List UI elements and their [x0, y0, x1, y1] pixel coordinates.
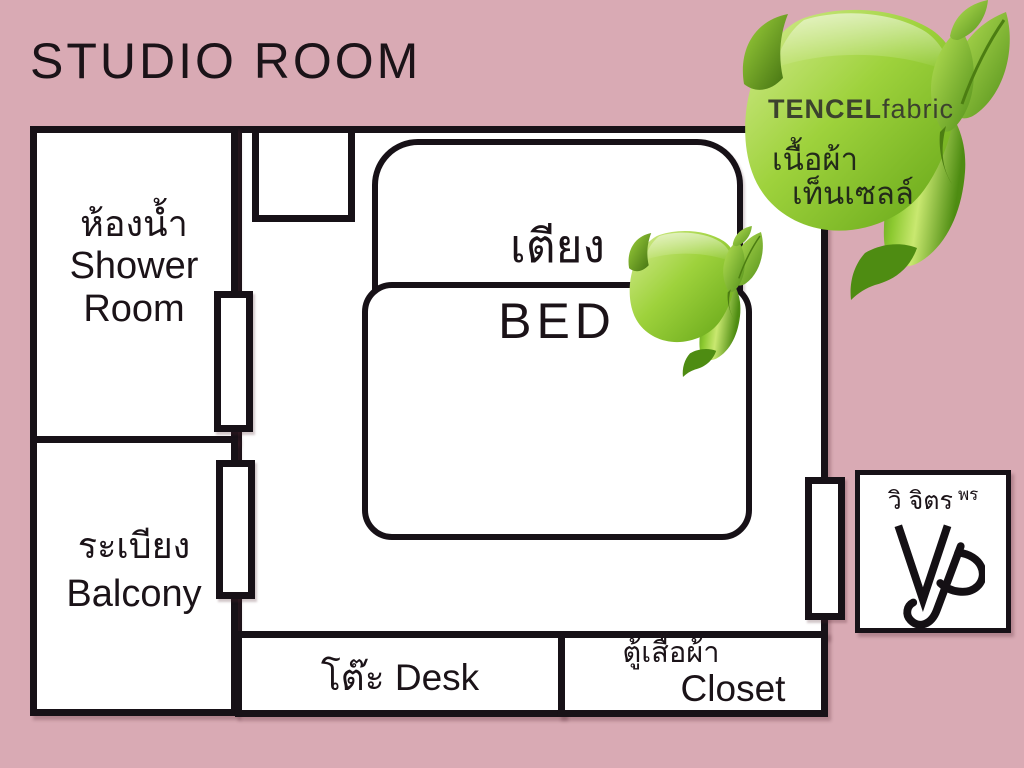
shower-room-label: ห้องน้ำ Shower Room: [30, 202, 238, 331]
wall-niche-outline: [252, 126, 355, 222]
balcony-label: ระเบียง Balcony: [30, 522, 238, 618]
balcony-label-thai: ระเบียง: [30, 522, 238, 570]
logo-name: วิ จิตรพร: [860, 481, 1006, 521]
desk-label-thai: โต๊ะ: [321, 657, 385, 698]
closet-label-thai: ตู้เสื้อผ้า: [536, 636, 806, 670]
logo-name-suffix: พร: [958, 485, 978, 504]
desk-label: โต๊ะ Desk: [235, 648, 565, 707]
page-title: STUDIO ROOM: [30, 32, 421, 90]
shower-room-label-en2: Room: [30, 288, 238, 331]
balcony-label-en: Balcony: [30, 570, 238, 618]
tencel-brand-bold: TENCEL: [768, 94, 882, 124]
logo-name-main: วิ จิตร: [888, 487, 953, 515]
shower-room-label-en1: Shower: [30, 245, 238, 288]
closet-label: ตู้เสื้อผ้า Closet: [558, 636, 828, 707]
entrance-door: [805, 477, 845, 620]
tencel-thai-line2: เท็นเซลล์: [792, 168, 914, 218]
studio-room-floorplan: STUDIO ROOM ห้องน้ำ Shower Room ระเบียง …: [0, 0, 1024, 768]
logo-box: วิ จิตรพร VP: [855, 470, 1011, 633]
tencel-ribbon-icon: [712, 0, 1022, 302]
tencel-brand-text: TENCELfabric: [768, 94, 954, 125]
desk-label-en: Desk: [395, 657, 479, 698]
monogram-v: [898, 526, 947, 600]
closet-label-en: Closet: [598, 670, 868, 707]
tencel-brand-suffix: fabric: [882, 94, 954, 124]
shower-room-label-thai: ห้องน้ำ: [30, 202, 238, 245]
vp-monogram-icon: [881, 519, 985, 631]
